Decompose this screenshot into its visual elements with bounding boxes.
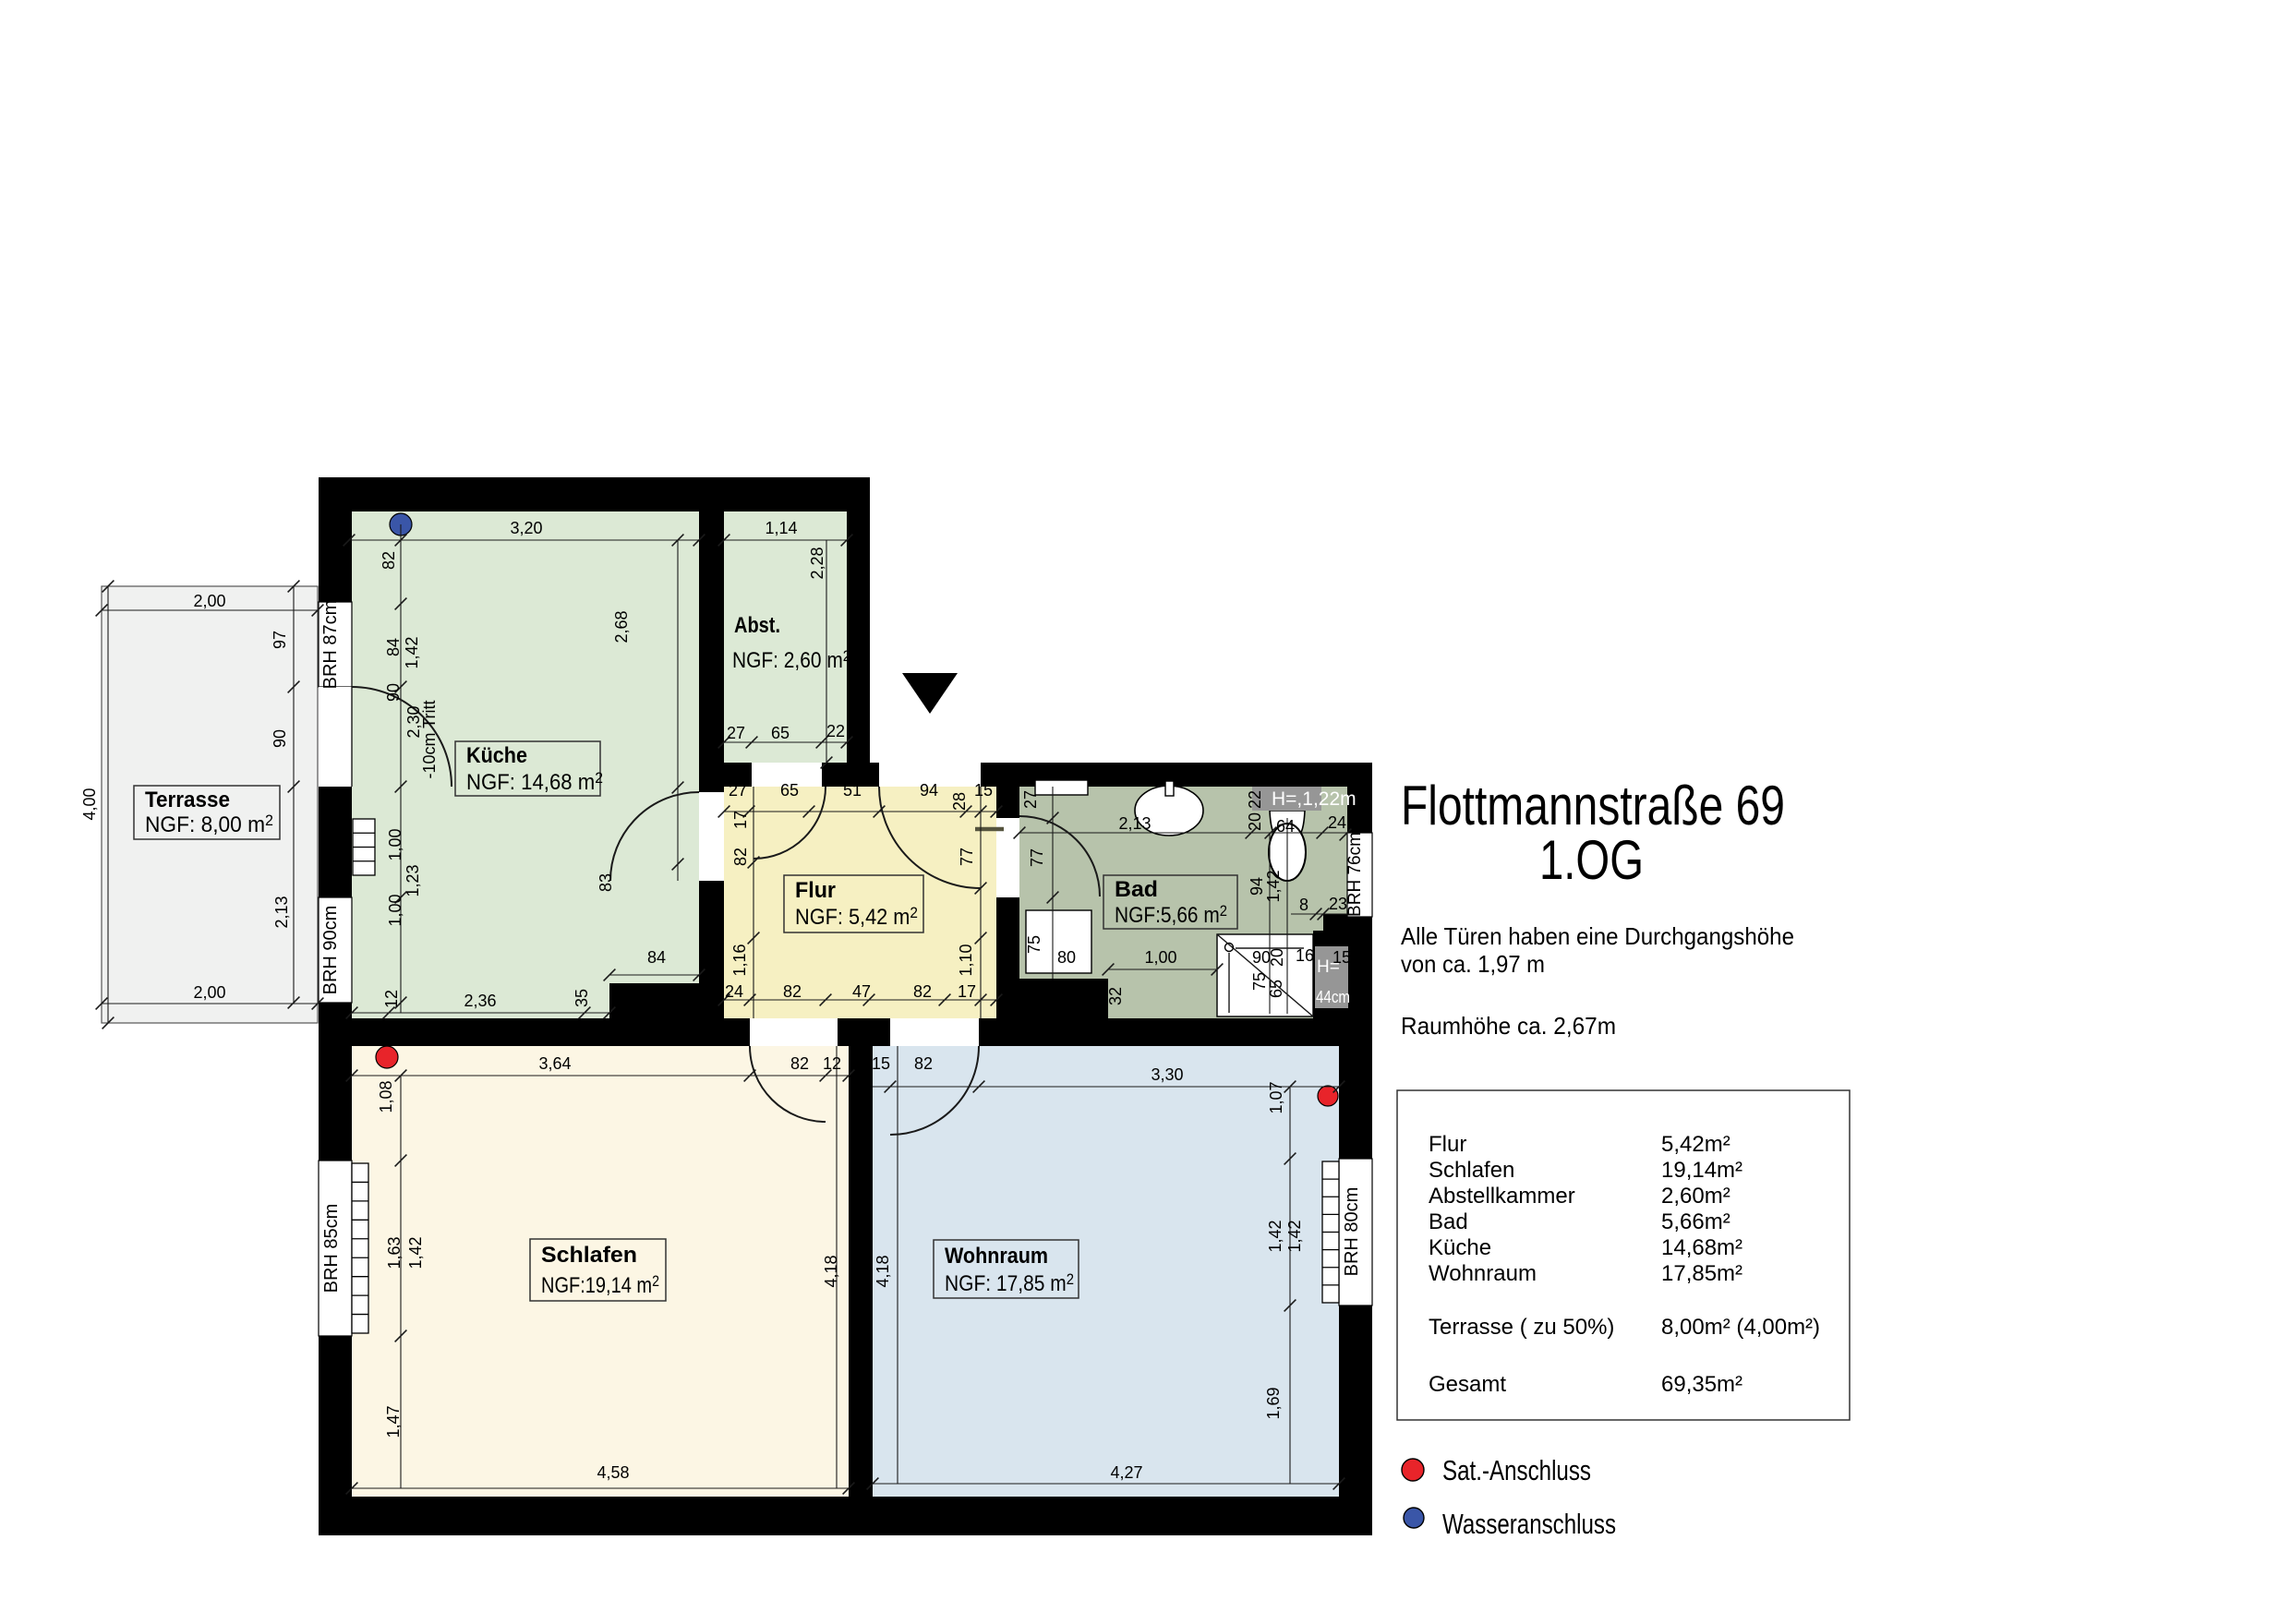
svg-text:94: 94 xyxy=(920,781,938,800)
svg-text:von ca. 1,97 m: von ca. 1,97 m xyxy=(1401,950,1545,978)
svg-text:8: 8 xyxy=(1299,896,1308,914)
svg-text:84: 84 xyxy=(384,638,403,656)
svg-text:5,42m²: 5,42m² xyxy=(1661,1132,1730,1157)
svg-text:84: 84 xyxy=(647,948,666,967)
svg-text:2,00: 2,00 xyxy=(193,592,225,610)
svg-text:15: 15 xyxy=(872,1054,890,1073)
svg-text:12: 12 xyxy=(823,1054,841,1073)
svg-text:1,00: 1,00 xyxy=(386,894,404,926)
svg-text:64: 64 xyxy=(1276,817,1295,836)
svg-text:Küche: Küche xyxy=(466,743,527,768)
svg-text:NGF: 14,68 m2: NGF: 14,68 m2 xyxy=(466,769,603,795)
svg-text:20: 20 xyxy=(1268,948,1286,967)
svg-text:80: 80 xyxy=(1057,948,1076,967)
svg-text:2,00: 2,00 xyxy=(193,983,225,1002)
svg-text:1,07: 1,07 xyxy=(1267,1081,1285,1113)
svg-text:82: 82 xyxy=(380,551,398,570)
svg-text:1,69: 1,69 xyxy=(1264,1387,1283,1419)
svg-text:1,42: 1,42 xyxy=(406,1236,425,1269)
svg-text:NGF: 2,60 m2: NGF: 2,60 m2 xyxy=(732,647,850,673)
svg-text:2,28: 2,28 xyxy=(808,547,826,579)
svg-text:17: 17 xyxy=(731,811,750,829)
svg-text:1,42: 1,42 xyxy=(1266,1220,1284,1252)
svg-text:69,35m²: 69,35m² xyxy=(1661,1372,1742,1397)
svg-text:1,00: 1,00 xyxy=(386,828,404,860)
svg-text:5,66m²: 5,66m² xyxy=(1661,1209,1730,1234)
svg-text:Terrasse ( zu 50%): Terrasse ( zu 50%) xyxy=(1429,1315,1614,1340)
svg-text:15: 15 xyxy=(974,781,993,800)
svg-text:20: 20 xyxy=(1246,812,1264,831)
svg-text:23: 23 xyxy=(1329,895,1347,913)
svg-text:NGF:5,66 m2: NGF:5,66 m2 xyxy=(1115,902,1227,928)
svg-text:32: 32 xyxy=(1106,987,1125,1005)
svg-text:Bad: Bad xyxy=(1115,877,1158,902)
svg-text:Flur: Flur xyxy=(795,878,836,903)
svg-text:4,18: 4,18 xyxy=(874,1255,892,1287)
svg-text:24: 24 xyxy=(1328,813,1346,832)
svg-text:77: 77 xyxy=(958,848,976,866)
svg-text:Wohnraum: Wohnraum xyxy=(945,1244,1048,1269)
svg-text:-10cm Tritt: -10cm Tritt xyxy=(420,700,439,778)
svg-text:Raumhöhe ca. 2,67m: Raumhöhe ca. 2,67m xyxy=(1401,1012,1616,1040)
svg-text:Wohnraum: Wohnraum xyxy=(1429,1261,1537,1286)
svg-text:1,00: 1,00 xyxy=(1144,948,1176,967)
svg-text:1,16: 1,16 xyxy=(730,944,749,976)
svg-text:65: 65 xyxy=(1267,980,1285,998)
svg-text:1,14: 1,14 xyxy=(765,519,797,537)
svg-text:12: 12 xyxy=(382,990,401,1008)
svg-text:17,85m²: 17,85m² xyxy=(1661,1261,1742,1286)
svg-text:97: 97 xyxy=(271,631,289,649)
svg-text:27: 27 xyxy=(729,781,747,800)
svg-text:1,10: 1,10 xyxy=(957,944,975,976)
svg-text:BRH 85cm: BRH 85cm xyxy=(321,1204,342,1293)
svg-text:75: 75 xyxy=(1250,972,1269,991)
svg-text:BRH 90cm: BRH 90cm xyxy=(320,906,341,995)
svg-text:1,42: 1,42 xyxy=(1285,1220,1304,1252)
svg-text:8,00m² (4,00m²): 8,00m² (4,00m²) xyxy=(1661,1315,1820,1340)
svg-text:Schlafen: Schlafen xyxy=(541,1243,637,1268)
svg-text:2,68: 2,68 xyxy=(612,610,631,643)
svg-text:4,27: 4,27 xyxy=(1110,1463,1142,1482)
svg-text:NGF: 8,00 m2: NGF: 8,00 m2 xyxy=(145,812,273,837)
svg-text:Abst.: Abst. xyxy=(734,613,780,638)
svg-text:27: 27 xyxy=(727,724,745,742)
svg-text:NGF: 17,85 m2: NGF: 17,85 m2 xyxy=(945,1270,1074,1296)
svg-text:Wasseranschluss: Wasseranschluss xyxy=(1442,1508,1616,1540)
svg-text:BRH 87cm: BRH 87cm xyxy=(320,600,341,690)
svg-text:19,14m²: 19,14m² xyxy=(1661,1158,1742,1183)
svg-text:4,18: 4,18 xyxy=(822,1255,840,1287)
svg-text:65: 65 xyxy=(780,781,799,800)
svg-text:2,60m²: 2,60m² xyxy=(1661,1184,1730,1209)
svg-text:82: 82 xyxy=(731,848,750,866)
svg-text:4,00: 4,00 xyxy=(80,788,99,820)
svg-text:Küche: Küche xyxy=(1429,1235,1491,1260)
svg-text:1,08: 1,08 xyxy=(377,1080,395,1113)
svg-text:22: 22 xyxy=(1246,790,1264,809)
svg-text:1,42: 1,42 xyxy=(1264,870,1283,902)
svg-text:14,68m²: 14,68m² xyxy=(1661,1235,1742,1260)
svg-text:51: 51 xyxy=(843,781,862,800)
svg-text:BRH 80cm: BRH 80cm xyxy=(1342,1187,1362,1277)
svg-text:75: 75 xyxy=(1025,935,1043,954)
svg-text:Terrasse: Terrasse xyxy=(145,788,230,812)
svg-text:1,23: 1,23 xyxy=(404,864,422,896)
svg-text:65: 65 xyxy=(771,724,790,742)
svg-text:22: 22 xyxy=(826,722,845,740)
svg-text:3,20: 3,20 xyxy=(510,519,542,537)
svg-text:27: 27 xyxy=(1021,790,1040,809)
svg-text:1,42: 1,42 xyxy=(403,636,421,668)
svg-text:35: 35 xyxy=(573,989,591,1007)
svg-text:NGF:19,14 m2: NGF:19,14 m2 xyxy=(541,1272,659,1298)
svg-text:Schlafen: Schlafen xyxy=(1429,1158,1514,1183)
svg-text:Flur: Flur xyxy=(1429,1132,1466,1157)
svg-text:82: 82 xyxy=(790,1054,809,1073)
svg-text:15: 15 xyxy=(1332,948,1351,967)
svg-text:Flottmannstraße 69: Flottmannstraße 69 xyxy=(1401,775,1785,836)
svg-text:83: 83 xyxy=(597,873,615,892)
svg-text:17: 17 xyxy=(958,982,976,1001)
svg-text:4,58: 4,58 xyxy=(597,1463,629,1482)
svg-text:Abstellkammer: Abstellkammer xyxy=(1429,1184,1575,1209)
svg-text:2,13: 2,13 xyxy=(1118,814,1151,833)
svg-text:Alle Türen haben eine Durchgan: Alle Türen haben eine Durchgangshöhe xyxy=(1401,922,1794,950)
svg-text:44cm: 44cm xyxy=(1316,988,1350,1006)
svg-text:24: 24 xyxy=(725,982,743,1001)
svg-text:82: 82 xyxy=(783,982,802,1001)
svg-text:77: 77 xyxy=(1028,848,1046,867)
svg-text:82: 82 xyxy=(914,1054,933,1073)
svg-text:16: 16 xyxy=(1296,946,1314,965)
svg-text:Gesamt: Gesamt xyxy=(1429,1372,1506,1397)
svg-text:2,13: 2,13 xyxy=(272,896,291,928)
svg-text:NGF: 5,42 m2: NGF: 5,42 m2 xyxy=(795,904,918,930)
svg-text:94: 94 xyxy=(1248,877,1266,896)
svg-text:BRH 76cm: BRH 76cm xyxy=(1345,832,1365,917)
svg-text:82: 82 xyxy=(913,982,932,1001)
svg-text:28: 28 xyxy=(950,792,969,811)
svg-text:Bad: Bad xyxy=(1429,1209,1468,1234)
svg-text:H=,1,22m: H=,1,22m xyxy=(1272,788,1357,810)
svg-text:90: 90 xyxy=(271,729,289,748)
svg-text:2,36: 2,36 xyxy=(464,992,496,1010)
svg-text:1,47: 1,47 xyxy=(384,1405,403,1438)
svg-text:47: 47 xyxy=(852,982,871,1001)
svg-text:90: 90 xyxy=(384,683,403,702)
svg-text:3,30: 3,30 xyxy=(1151,1065,1183,1084)
svg-text:1,63: 1,63 xyxy=(385,1236,404,1269)
svg-text:Sat.-Anschluss: Sat.-Anschluss xyxy=(1442,1454,1591,1486)
svg-text:1.OG: 1.OG xyxy=(1539,829,1644,891)
svg-text:3,64: 3,64 xyxy=(538,1054,571,1073)
